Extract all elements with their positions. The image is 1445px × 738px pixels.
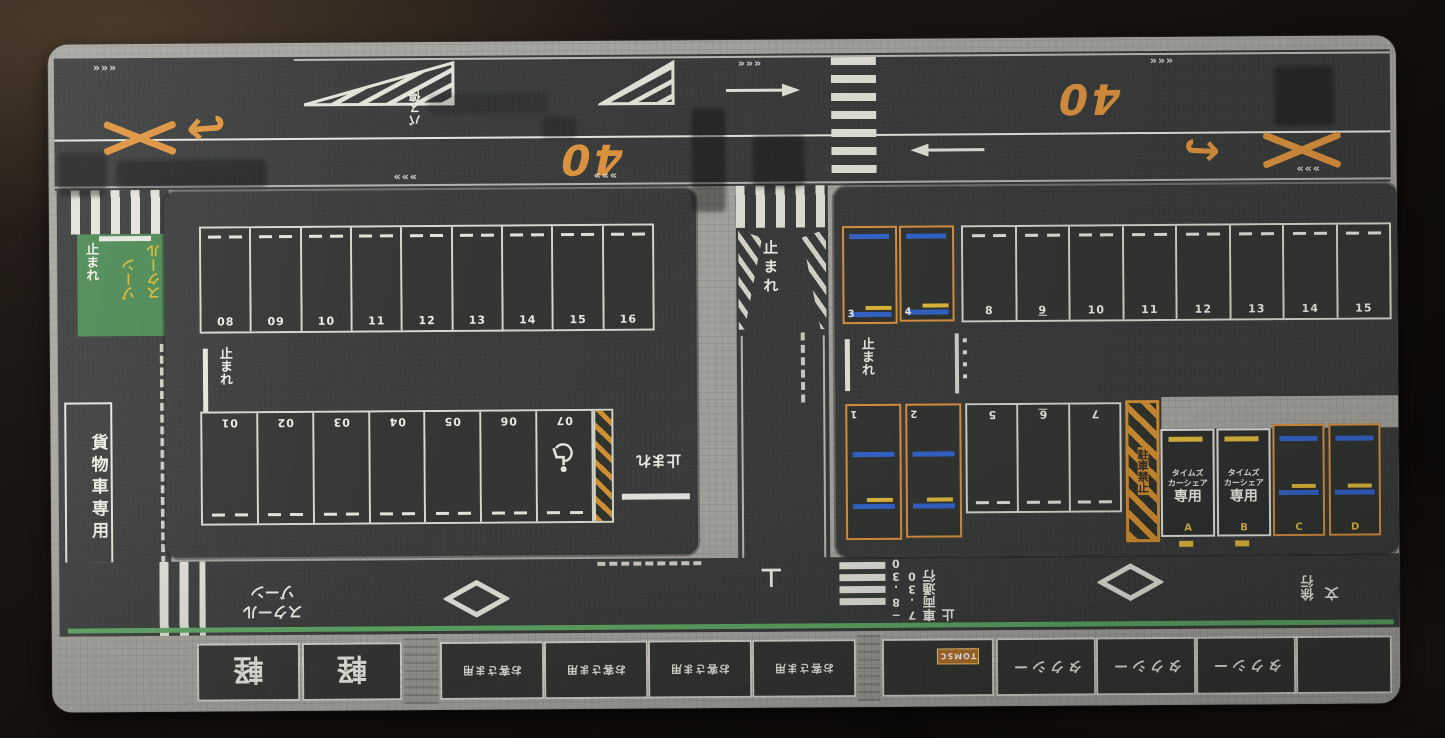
parking-space: 06: [482, 411, 539, 521]
stop-marking: 止まれ: [81, 242, 101, 330]
wheel-stop-yellow: [1348, 483, 1372, 487]
no-parking-hatch: [593, 411, 612, 521]
parking-space: 13: [1230, 225, 1284, 318]
space-number: 04: [370, 415, 424, 428]
crosswalk: [831, 57, 877, 183]
wheel-stop-marks: [1124, 233, 1176, 236]
carshare-label: タイムズ カーシェア 専用: [1219, 468, 1269, 505]
wheel-stop-yellow: [927, 497, 953, 501]
crosswalk: [736, 185, 828, 228]
parking-space: 12: [402, 227, 453, 330]
wheel-stop-marks: [553, 233, 601, 236]
accessible-parking-space: 07: [537, 411, 594, 521]
parking-space: 12: [1177, 225, 1231, 318]
chevron-marks: «««: [594, 169, 618, 182]
photo-of-parking-mat: { "scene": { "description": "Photograph …: [0, 0, 1445, 738]
parking-space: 6: [1019, 405, 1071, 511]
space-number: 03: [314, 415, 368, 428]
cargo-vehicles-only-sign: 貨物車専用: [64, 402, 113, 564]
curb-marker-yellow: [1235, 540, 1249, 546]
u-turn-arrow-marking: ↪: [1182, 124, 1221, 177]
shadow-blob: [428, 93, 548, 114]
parking-space: 05: [426, 412, 483, 522]
space-number: 4: [905, 307, 912, 318]
speed-limit-40-marking: 40: [1051, 74, 1126, 124]
space-number: 14: [504, 313, 552, 326]
space-number: 07: [537, 414, 591, 427]
ev-parking-space: 2: [905, 403, 962, 537]
wheel-stop-blue: [906, 233, 946, 238]
space-number: 15: [1338, 301, 1390, 314]
no-parking-hatch-sign: 駐車禁止: [1125, 400, 1160, 542]
wheel-stop-marks: [302, 235, 350, 238]
no-stopping-x-marking: [101, 112, 178, 165]
wheelchair-icon: [552, 441, 578, 473]
space-number: 01: [202, 416, 256, 429]
space-number: 12: [1178, 302, 1230, 315]
wheel-stop-yellow: [923, 303, 949, 307]
wheel-stop-marks: [482, 511, 536, 514]
space-number: 13: [453, 314, 501, 327]
wheel-stop-marks: [426, 512, 480, 515]
parking-space: 11: [352, 227, 403, 330]
wheel-stop-marks: [604, 232, 652, 235]
customer-label: お客さま用: [442, 643, 542, 698]
wheel-stop-blue: [853, 452, 895, 457]
taxi-label: タクシー: [1198, 638, 1294, 693]
wheel-stop-marks: [203, 513, 257, 516]
wheel-stop-marks: [1070, 233, 1122, 236]
straight-arrow-marking: [726, 83, 800, 97]
crosswalk: [159, 562, 206, 636]
reserved-space-c: C: [1272, 424, 1325, 536]
customer-label: お客さま用: [650, 642, 750, 697]
wheel-stop-marks: [453, 234, 501, 237]
small-marking-line: [955, 333, 959, 393]
stop-line: [99, 236, 151, 241]
parking-lot-play-mat: »»» ↩ バス停 ««« 40 ««« »»» »»» 40: [48, 35, 1401, 712]
shadow-blob: [542, 117, 576, 139]
empty-space: [1296, 635, 1392, 694]
bus-stop-zone-marking: [598, 59, 676, 107]
wheel-stop-blue: [853, 504, 895, 509]
parking-space: 7: [1070, 404, 1120, 510]
school-zone-text: ゾーン スクール: [119, 244, 164, 300]
shadow-blob: [691, 108, 726, 212]
parking-space: 15: [1337, 224, 1389, 317]
parking-space: 9: [1016, 227, 1070, 320]
school-slow-marking: 徐行 文: [1299, 557, 1342, 601]
parking-space: 10: [302, 228, 353, 331]
school-zone-marking: スクール ゾーン: [211, 581, 333, 622]
space-number: 16: [604, 312, 652, 325]
parking-space: 09: [251, 228, 302, 331]
crosswalk-ahead-diamond-marking: [1097, 563, 1163, 601]
parking-space: 11: [1123, 226, 1177, 319]
parking-row-5-7: 5 6 7: [965, 402, 1122, 513]
planter-strip: [858, 635, 880, 701]
chevron-marks: «««: [394, 170, 418, 183]
parking-space: 14: [503, 226, 554, 329]
crosswalk: [71, 190, 161, 235]
ev-parking-space: 3: [842, 226, 898, 324]
space-number: 6: [1019, 408, 1068, 421]
wheel-stop-marks: [968, 501, 1017, 504]
space-number: 14: [1285, 302, 1337, 315]
dashed-lane-line: [597, 561, 701, 566]
wheel-stop-marks: [201, 235, 249, 238]
road-narrowing-zebra: [738, 230, 763, 330]
wheel-stop-marks: [1017, 234, 1069, 237]
space-number: 09: [252, 315, 300, 328]
customer-label: お客さま用: [754, 641, 854, 696]
shadow-blob: [752, 135, 804, 187]
parking-space: 8: [963, 227, 1017, 320]
wheel-stop-blue: [913, 503, 955, 508]
space-letter: B: [1219, 522, 1269, 533]
space-number: 11: [353, 314, 401, 327]
wheel-stop-yellow: [1168, 437, 1202, 442]
space-number: 11: [1124, 303, 1176, 316]
chevron-marks: »»»: [738, 57, 762, 70]
ev-parking-space: 1: [845, 404, 902, 540]
stop-line: [622, 493, 690, 499]
wheel-stop-blue: [1279, 436, 1317, 441]
stop-marking: 止まれ: [215, 346, 234, 412]
wheel-stop-marks: [1177, 232, 1229, 235]
space-number: 06: [482, 414, 536, 427]
taxi-space: タクシー: [1096, 637, 1196, 696]
wheel-stop-marks: [251, 235, 299, 238]
left-parking-lot: 08 09 10 11 12 13 14 15 16 止まれ 01 02 03 …: [164, 188, 699, 558]
customer-space: お客さま用: [648, 640, 752, 699]
space-number: 5: [967, 408, 1016, 421]
wheel-stop-yellow: [1292, 484, 1316, 488]
space-number: 3: [848, 309, 855, 320]
taxi-space: タクシー: [1196, 636, 1296, 695]
space-letter: D: [1331, 521, 1379, 532]
wheel-stop-marks: [503, 233, 551, 236]
wheel-stop-marks: [1338, 231, 1390, 234]
right-parking-lot: 3 4 8 9 10 11 12 13 14 15 止まれ 1: [834, 183, 1400, 557]
parking-space: 01: [202, 413, 259, 523]
space-number: 10: [1071, 303, 1123, 316]
bottom-road: スクール ゾーン ⊥ −8.30 7.30 車両通行止 徐行 文: [59, 553, 1399, 636]
u-turn-arrow-marking: ↩: [184, 98, 228, 157]
customer-space: お客さま用: [544, 641, 648, 700]
space-number: 1: [850, 408, 857, 419]
wheel-stop-marks: [538, 511, 592, 514]
wheel-stop-blue: [850, 312, 892, 317]
wheel-stop-yellow: [867, 498, 893, 502]
space-number: 7: [1070, 407, 1119, 420]
chevron-marks: «««: [1297, 162, 1321, 175]
chevron-marks: »»»: [93, 61, 117, 74]
reserved-space-d: D: [1328, 423, 1381, 535]
parking-space: 08: [201, 228, 252, 331]
wheel-stop-marks: [1231, 232, 1283, 235]
stop-bar-group: [839, 562, 885, 608]
space-number: 02: [258, 416, 312, 429]
school-zone-green-patch: 止まれ ゾーン スクール: [77, 234, 170, 337]
kei-car-space: 軽: [197, 643, 300, 702]
customer-space: お客さま用: [440, 641, 544, 700]
space-number: 2: [910, 408, 917, 419]
wheel-stop-marks: [963, 234, 1015, 237]
space-number: 9: [1017, 304, 1069, 317]
tomsc-logo: TOMSC: [937, 648, 979, 664]
crosswalk-ahead-diamond-marking: [443, 580, 509, 618]
stop-line: [203, 349, 208, 412]
dashed-center-line: [801, 332, 805, 402]
carshare-label: タイムズ カーシェア 専用: [1163, 469, 1213, 506]
space-number: 05: [426, 415, 480, 428]
kei-label: 軽: [199, 645, 298, 700]
chevron-marks: »»»: [1150, 54, 1174, 67]
taxi-space: タクシー: [996, 637, 1096, 696]
customer-label: お客さま用: [546, 643, 646, 698]
shadow-blob: [58, 152, 106, 196]
parking-space: 04: [370, 412, 427, 522]
parking-row-8-15: 8 9 10 11 12 13 14 15: [961, 222, 1392, 322]
wheel-stop-marks: [371, 512, 425, 515]
space-number: 10: [302, 315, 350, 328]
customer-space: お客さま用: [752, 639, 856, 698]
wheel-stop-marks: [1284, 232, 1336, 235]
t-junction-marking: ⊥: [759, 562, 783, 592]
bus-stop-label: バス停: [406, 70, 423, 126]
space-letter: C: [1275, 522, 1323, 533]
parking-space: 15: [553, 226, 604, 329]
stop-marking: 止まれ: [760, 240, 782, 332]
space-number: 15: [554, 313, 602, 326]
taxi-label: タクシー: [998, 639, 1094, 694]
vehicle-restriction-marking: −8.30 7.30 車両通行止: [889, 557, 959, 621]
parking-space: 02: [258, 413, 315, 523]
parking-space: 14: [1284, 225, 1338, 318]
parking-space: 10: [1070, 226, 1124, 319]
shadow-blob: [1274, 66, 1334, 126]
wheel-stop-blue: [1335, 435, 1373, 440]
wheel-stop-marks: [1019, 501, 1068, 504]
parking-space: 13: [453, 227, 504, 330]
stop-marking: 止まれ: [857, 337, 876, 395]
wheel-stop-blue: [1279, 490, 1319, 495]
parking-row-01-07: 01 02 03 04 05 06 07: [200, 409, 614, 526]
wheel-stop-marks: [352, 234, 400, 237]
stop-marking: 止まれ: [628, 450, 690, 471]
wheel-stop-blue: [913, 451, 955, 456]
carshare-space-b: タイムズ カーシェア 専用 B: [1216, 428, 1271, 536]
wheel-stop-yellow: [1224, 436, 1258, 441]
shadow-blob: [116, 159, 266, 188]
no-parking-text: 駐車禁止: [1137, 447, 1148, 495]
kei-label: 軽: [304, 644, 400, 699]
space-number: 8: [964, 304, 1016, 317]
road-narrowing-zebra: [802, 229, 827, 329]
curb-marker-yellow: [1179, 541, 1193, 547]
wheel-stop-yellow: [866, 306, 892, 310]
kei-car-space: 軽: [302, 642, 402, 701]
wheel-stop-marks: [259, 513, 313, 516]
stop-line: [845, 339, 850, 391]
taxi-label: タクシー: [1098, 639, 1194, 694]
wheel-stop-blue: [907, 309, 949, 314]
parking-space: 16: [604, 225, 653, 328]
carshare-space-a: タイムズ カーシェア 専用 A: [1160, 429, 1215, 537]
wheel-stop-blue: [849, 234, 889, 239]
ev-parking-space: 4: [899, 225, 955, 321]
wheel-stop-blue: [1335, 489, 1375, 494]
parking-space: 03: [314, 412, 371, 522]
wheel-stop-marks: [315, 512, 369, 515]
space-number: 13: [1231, 302, 1283, 315]
parking-row-08-16: 08 09 10 11 12 13 14 15 16: [199, 223, 655, 333]
space-letter: A: [1163, 523, 1213, 534]
parking-space: 5: [967, 405, 1019, 511]
space-number: 08: [202, 315, 250, 328]
logo-space: TOMSC: [882, 638, 994, 697]
wheel-stop-marks: [1071, 500, 1120, 503]
space-number: 12: [403, 314, 451, 327]
straight-arrow-marking: [910, 143, 984, 157]
planter-strip: [404, 638, 438, 704]
wheel-stop-marks: [402, 234, 450, 237]
